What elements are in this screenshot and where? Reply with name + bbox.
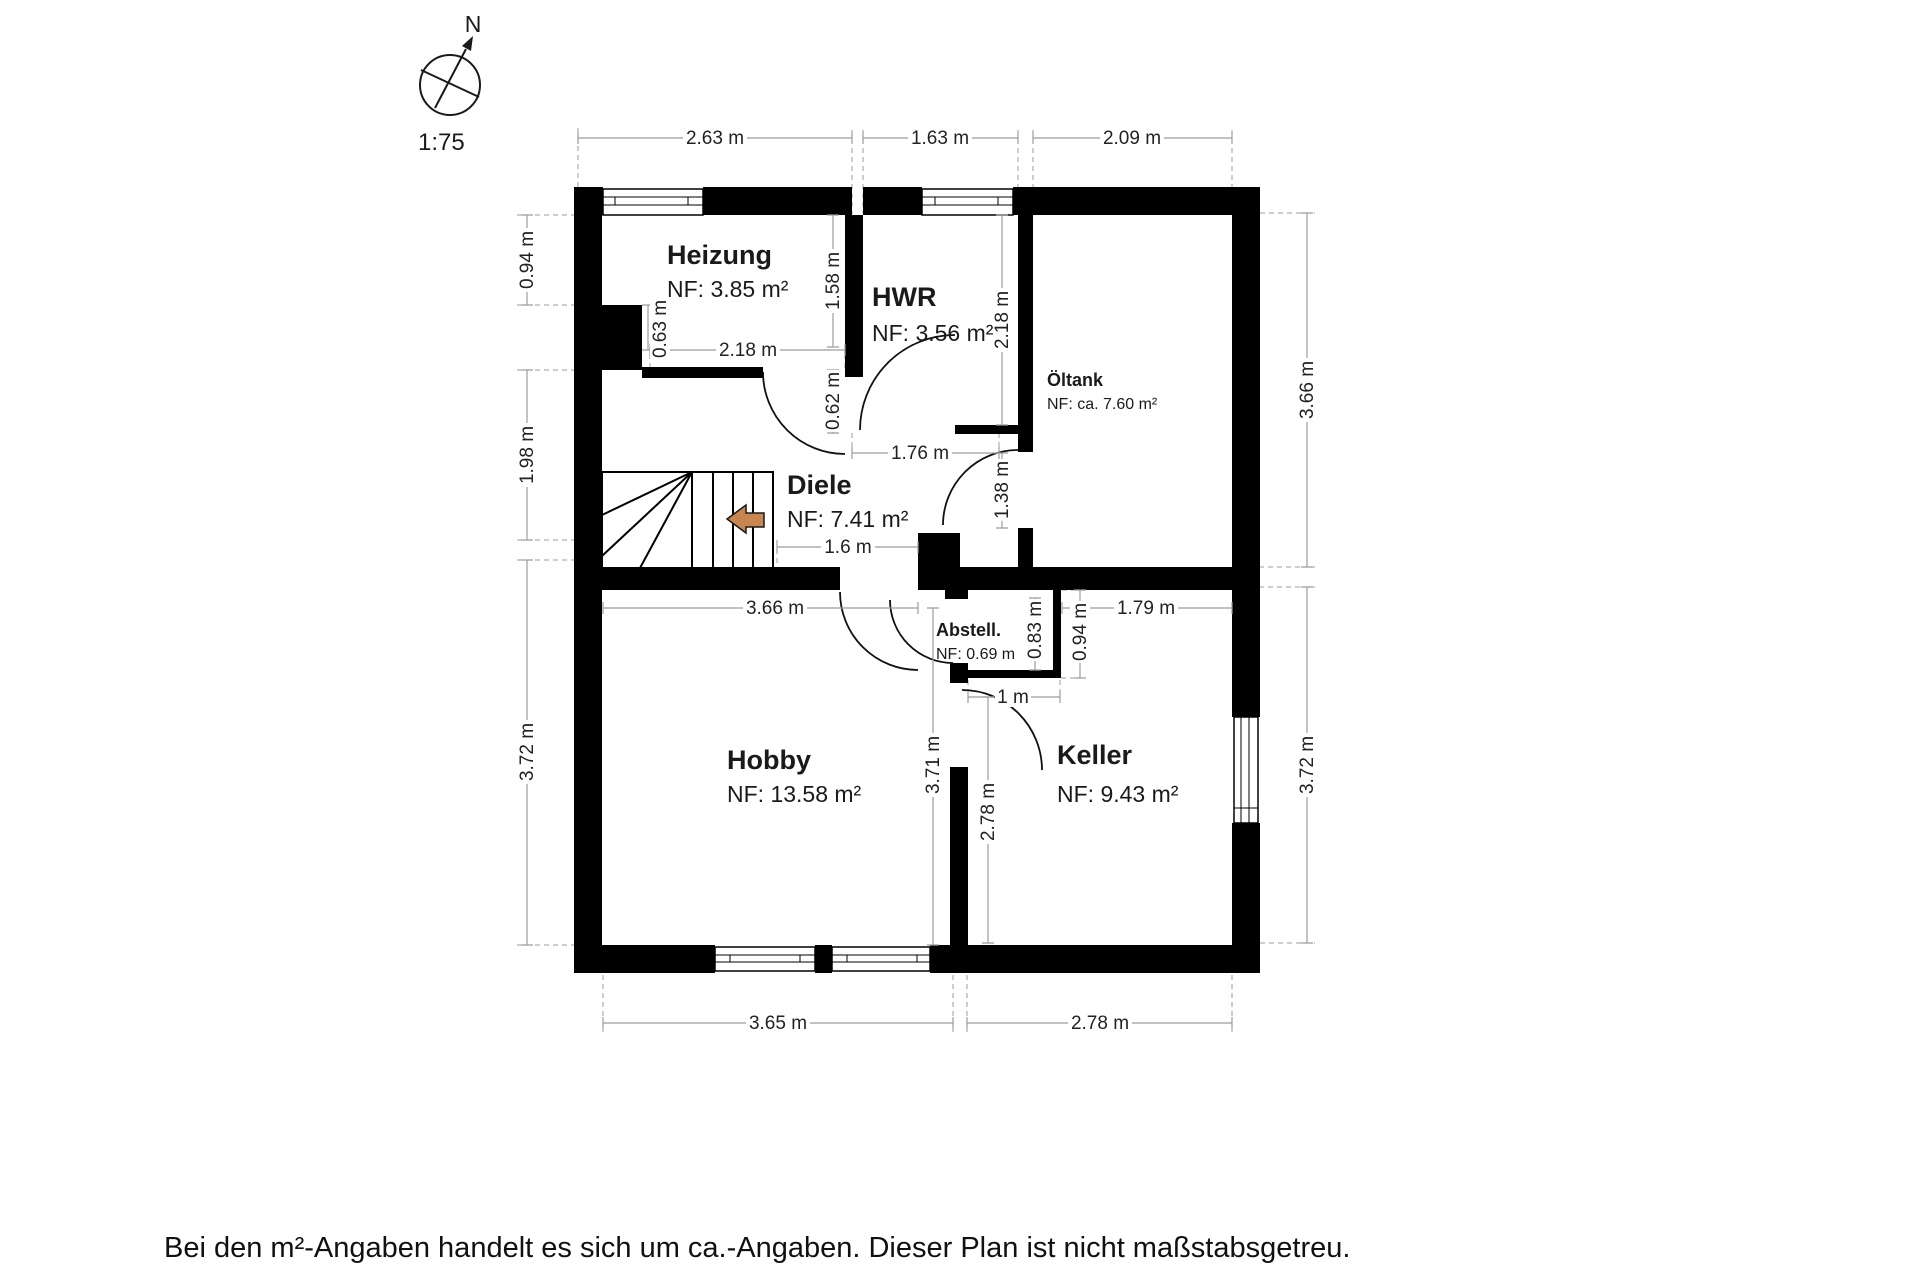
room-area-heizung: NF: 3.85 m² bbox=[667, 276, 789, 302]
room-label-keller: Keller bbox=[1057, 740, 1133, 770]
dim-keller-door-width: 1 m bbox=[997, 687, 1029, 708]
dim-heizung-width: 2.18 m bbox=[719, 340, 777, 361]
room-label-abstell: Abstell. bbox=[936, 620, 1001, 640]
room-area-hobby: NF: 13.58 m² bbox=[727, 781, 862, 807]
door-hwr bbox=[860, 335, 955, 430]
dim-left-1: 0.94 m bbox=[517, 231, 538, 289]
dim-bottom-2: 2.78 m bbox=[1071, 1013, 1129, 1034]
dim-top-2: 1.63 m bbox=[911, 128, 969, 149]
dim-keller-top-width: 1.79 m bbox=[1117, 598, 1175, 619]
window-hwr bbox=[922, 189, 1013, 215]
dim-heizung-door-offset: 0.62 m bbox=[823, 372, 844, 430]
chimney-block bbox=[574, 305, 642, 370]
dim-bottom-1: 3.65 m bbox=[749, 1013, 807, 1034]
dim-heizung-depth: 1.58 m bbox=[823, 252, 844, 310]
room-label-diele: Diele bbox=[787, 470, 852, 500]
dim-right-1: 3.66 m bbox=[1297, 361, 1318, 419]
north-arrowhead bbox=[462, 36, 473, 51]
room-label-hobby: Hobby bbox=[727, 745, 811, 775]
stairs bbox=[602, 472, 773, 568]
dim-hwr-depth: 2.18 m bbox=[992, 291, 1013, 349]
room-area-hwr: NF: 3.56 m² bbox=[872, 320, 994, 346]
dim-hwr-width: 1.76 m bbox=[891, 443, 949, 464]
floorplan-svg: N 1:75 bbox=[0, 0, 1920, 1279]
room-label-oeltank: Öltank bbox=[1047, 370, 1104, 390]
dim-diele-opening: 1.6 m bbox=[824, 537, 872, 558]
window-hobby-1 bbox=[715, 947, 815, 971]
room-area-oeltank: NF: ca. 7.60 m² bbox=[1047, 396, 1158, 413]
dim-hobby-width: 3.66 m bbox=[746, 598, 804, 619]
compass-icon: N bbox=[420, 11, 481, 115]
room-label-hwr: HWR bbox=[872, 282, 936, 312]
dim-top-1: 2.63 m bbox=[686, 128, 744, 149]
scale-label: 1:75 bbox=[418, 129, 465, 156]
dim-right-2: 3.72 m bbox=[1297, 736, 1318, 794]
caption: Bei den m²-Angaben handelt es sich um ca… bbox=[164, 1232, 1350, 1265]
room-area-abstell: NF: 0.69 m bbox=[936, 646, 1015, 663]
room-label-heizung: Heizung bbox=[667, 240, 772, 270]
room-area-keller: NF: 9.43 m² bbox=[1057, 781, 1179, 807]
dim-keller-depth: 2.78 m bbox=[978, 783, 999, 841]
dim-abstell-outer-depth: 0.94 m bbox=[1070, 603, 1091, 661]
dim-chimney-depth: 0.63 m bbox=[650, 300, 671, 358]
room-area-diele: NF: 7.41 m² bbox=[787, 506, 909, 532]
dim-hobby-depth: 3.71 m bbox=[923, 736, 944, 794]
window-hobby-2 bbox=[832, 947, 930, 971]
window-heizung bbox=[603, 189, 703, 215]
dim-oeltank-door-width: 1.38 m bbox=[992, 461, 1013, 519]
dim-top-3: 2.09 m bbox=[1103, 128, 1161, 149]
window-right bbox=[1234, 717, 1258, 823]
dim-left-3: 3.72 m bbox=[517, 723, 538, 781]
north-label: N bbox=[465, 11, 482, 37]
door-hobby bbox=[840, 592, 918, 670]
dim-left-2: 1.98 m bbox=[517, 426, 538, 484]
floorplan-page: N 1:75 bbox=[0, 0, 1920, 1279]
dim-abstell-depth: 0.83 m bbox=[1025, 601, 1046, 659]
